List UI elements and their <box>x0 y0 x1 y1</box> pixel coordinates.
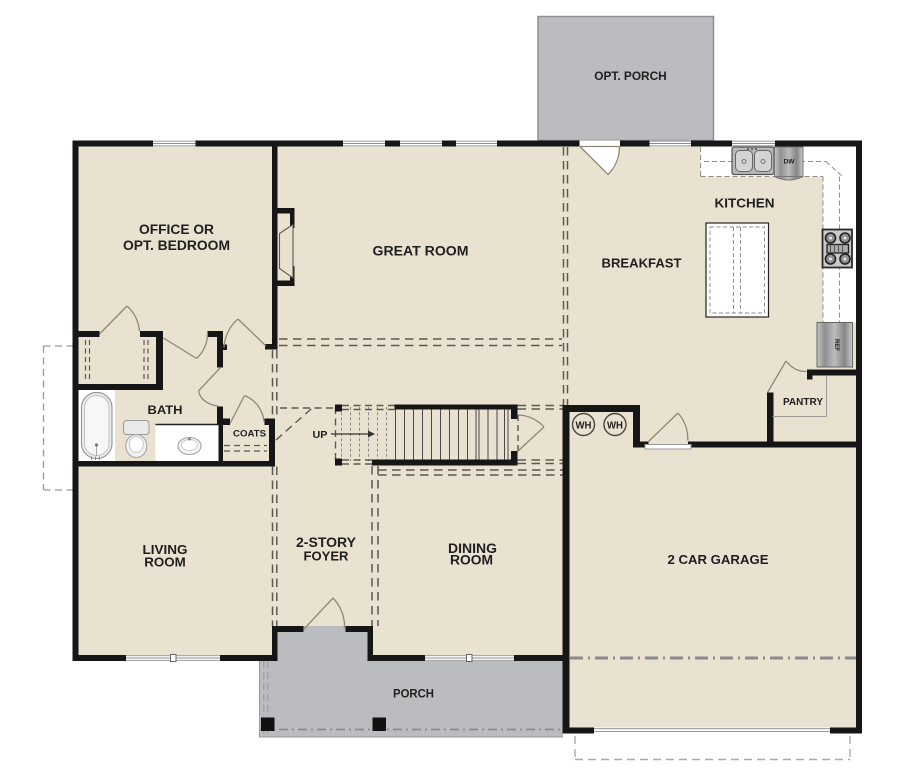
svg-text:GREAT ROOM: GREAT ROOM <box>373 244 469 259</box>
svg-text:DW: DW <box>784 159 796 166</box>
svg-text:WH: WH <box>576 420 592 432</box>
svg-text:UP: UP <box>313 429 328 441</box>
svg-text:BATH: BATH <box>148 403 183 417</box>
svg-text:OPT. PORCH: OPT. PORCH <box>594 71 667 83</box>
svg-text:KITCHEN: KITCHEN <box>715 196 775 211</box>
svg-text:2 CAR GARAGE: 2 CAR GARAGE <box>668 552 769 567</box>
svg-text:PORCH: PORCH <box>393 687 434 701</box>
svg-text:COATS: COATS <box>233 429 266 440</box>
svg-text:PANTRY: PANTRY <box>783 397 823 408</box>
svg-text:REF: REF <box>833 339 839 351</box>
svg-text:FOYER: FOYER <box>304 549 350 564</box>
svg-text:BREAKFAST: BREAKFAST <box>602 256 682 271</box>
svg-text:OFFICE OR: OFFICE OR <box>139 222 214 237</box>
svg-text:ROOM: ROOM <box>450 553 493 568</box>
svg-text:OPT. BEDROOM: OPT. BEDROOM <box>123 238 230 253</box>
svg-text:ROOM: ROOM <box>144 555 186 570</box>
svg-text:WH: WH <box>607 420 623 432</box>
